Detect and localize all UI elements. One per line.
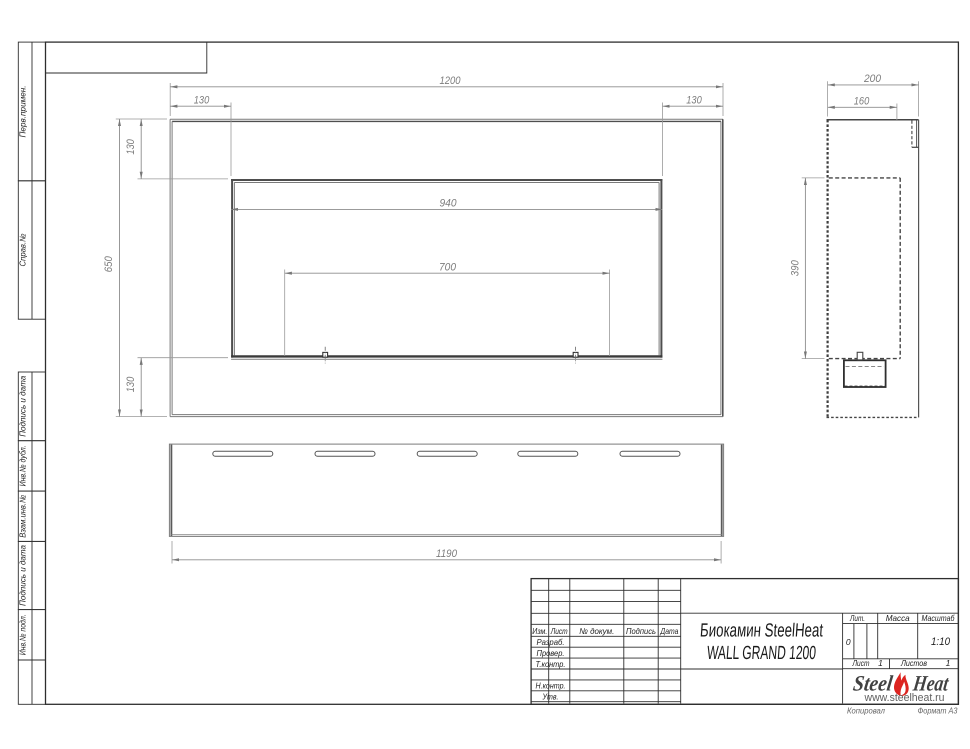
svg-text:Н.контр.: Н.контр. xyxy=(536,681,566,691)
svg-text:200: 200 xyxy=(863,73,882,85)
svg-text:130: 130 xyxy=(125,376,137,392)
svg-text:Взам.инв.№: Взам.инв.№ xyxy=(17,495,27,538)
svg-text:160: 160 xyxy=(854,95,870,107)
svg-text:Лист: Лист xyxy=(550,626,568,636)
svg-text:Масштаб: Масштаб xyxy=(922,613,956,623)
svg-text:1: 1 xyxy=(946,658,951,668)
svg-text:WALL GRAND 1200: WALL GRAND 1200 xyxy=(706,643,816,664)
svg-text:Провер.: Провер. xyxy=(537,648,565,658)
svg-text:Изм.: Изм. xyxy=(532,626,547,636)
svg-text:www.steelheat.ru: www.steelheat.ru xyxy=(864,692,945,704)
svg-text:1200: 1200 xyxy=(440,75,462,87)
svg-text:Лист: Лист xyxy=(852,658,870,668)
svg-text:1: 1 xyxy=(878,658,883,668)
svg-text:Листов: Листов xyxy=(900,658,927,668)
svg-text:Инв.№ дубл.: Инв.№ дубл. xyxy=(17,445,27,486)
svg-text:Перв.примен.: Перв.примен. xyxy=(17,86,27,138)
svg-text:Лит.: Лит. xyxy=(849,613,865,623)
svg-text:Подпись и дата: Подпись и дата xyxy=(17,376,27,437)
svg-text:650: 650 xyxy=(103,255,115,272)
svg-text:Разраб.: Разраб. xyxy=(537,637,565,647)
svg-text:№ докум.: № докум. xyxy=(579,626,614,636)
svg-text:Инв.№ подл.: Инв.№ подл. xyxy=(17,614,27,655)
svg-text:Дата: Дата xyxy=(660,626,679,636)
svg-text:Подпись: Подпись xyxy=(626,626,656,636)
svg-text:Подпись и дата: Подпись и дата xyxy=(17,545,27,606)
svg-text:390: 390 xyxy=(790,259,802,276)
svg-text:1190: 1190 xyxy=(436,548,458,560)
svg-text:700: 700 xyxy=(439,261,457,273)
svg-text:130: 130 xyxy=(194,94,210,106)
svg-text:Масса: Масса xyxy=(886,613,910,623)
svg-text:130: 130 xyxy=(686,94,702,106)
svg-text:Формат А3: Формат А3 xyxy=(918,706,958,716)
svg-text:Справ.№: Справ.№ xyxy=(17,234,27,267)
svg-text:940: 940 xyxy=(440,198,458,210)
svg-text:130: 130 xyxy=(125,138,137,154)
svg-text:Утв.: Утв. xyxy=(542,692,559,702)
svg-text:1:10: 1:10 xyxy=(931,636,950,648)
svg-text:Копировал: Копировал xyxy=(847,706,885,716)
svg-text:Т.контр.: Т.контр. xyxy=(536,659,566,669)
svg-text:0: 0 xyxy=(846,637,851,647)
svg-text:Биокамин SteelHeat: Биокамин SteelHeat xyxy=(699,620,824,641)
